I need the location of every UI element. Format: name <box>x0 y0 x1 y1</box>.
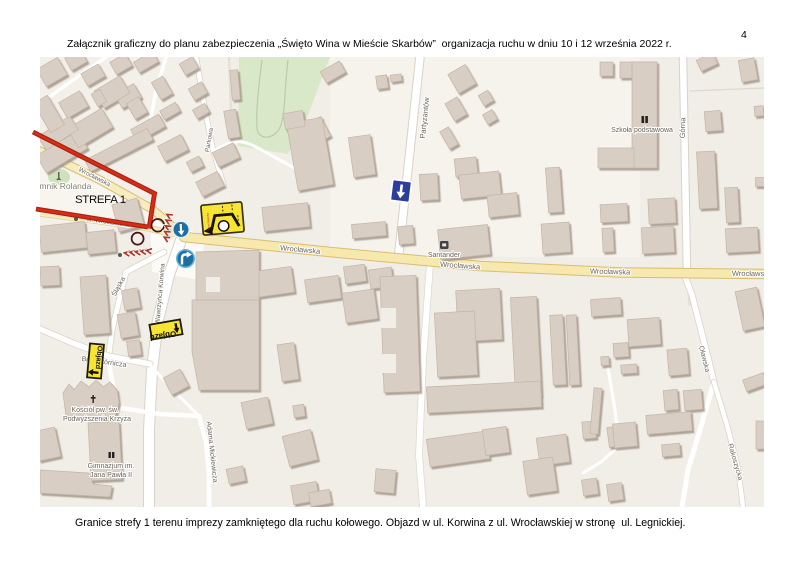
svg-text:Górna: Górna <box>678 117 688 139</box>
svg-text:Jana Pawła II: Jana Pawła II <box>90 472 132 479</box>
svg-text:Pomnik Rolanda: Pomnik Rolanda <box>29 181 92 191</box>
svg-text:Gimnazjum im.: Gimnazjum im. <box>88 463 135 470</box>
svg-text:Santander: Santander <box>428 252 461 259</box>
svg-text:Wrocławska: Wrocławska <box>590 266 631 276</box>
svg-text:Podwyższenia Krzyża: Podwyższenia Krzyża <box>63 416 131 423</box>
svg-text:STREFA 1: STREFA 1 <box>75 194 126 206</box>
svg-text:Kościół pw. św.: Kościół pw. św. <box>71 407 118 414</box>
svg-text:Wrocławska: Wrocławska <box>732 269 773 278</box>
svg-text:Szkoła podstawowa: Szkoła podstawowa <box>611 127 673 134</box>
